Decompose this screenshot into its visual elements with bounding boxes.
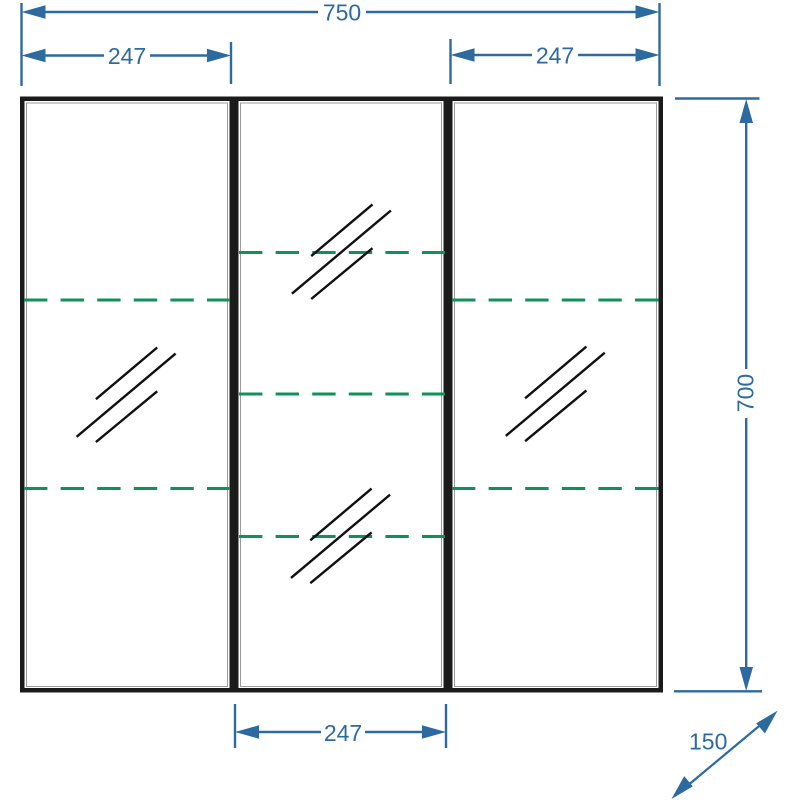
svg-text:150: 150 xyxy=(689,729,727,755)
svg-text:247: 247 xyxy=(324,720,362,746)
svg-text:750: 750 xyxy=(323,0,361,25)
svg-text:247: 247 xyxy=(108,43,146,69)
svg-text:700: 700 xyxy=(732,374,758,412)
svg-text:247: 247 xyxy=(536,43,574,69)
